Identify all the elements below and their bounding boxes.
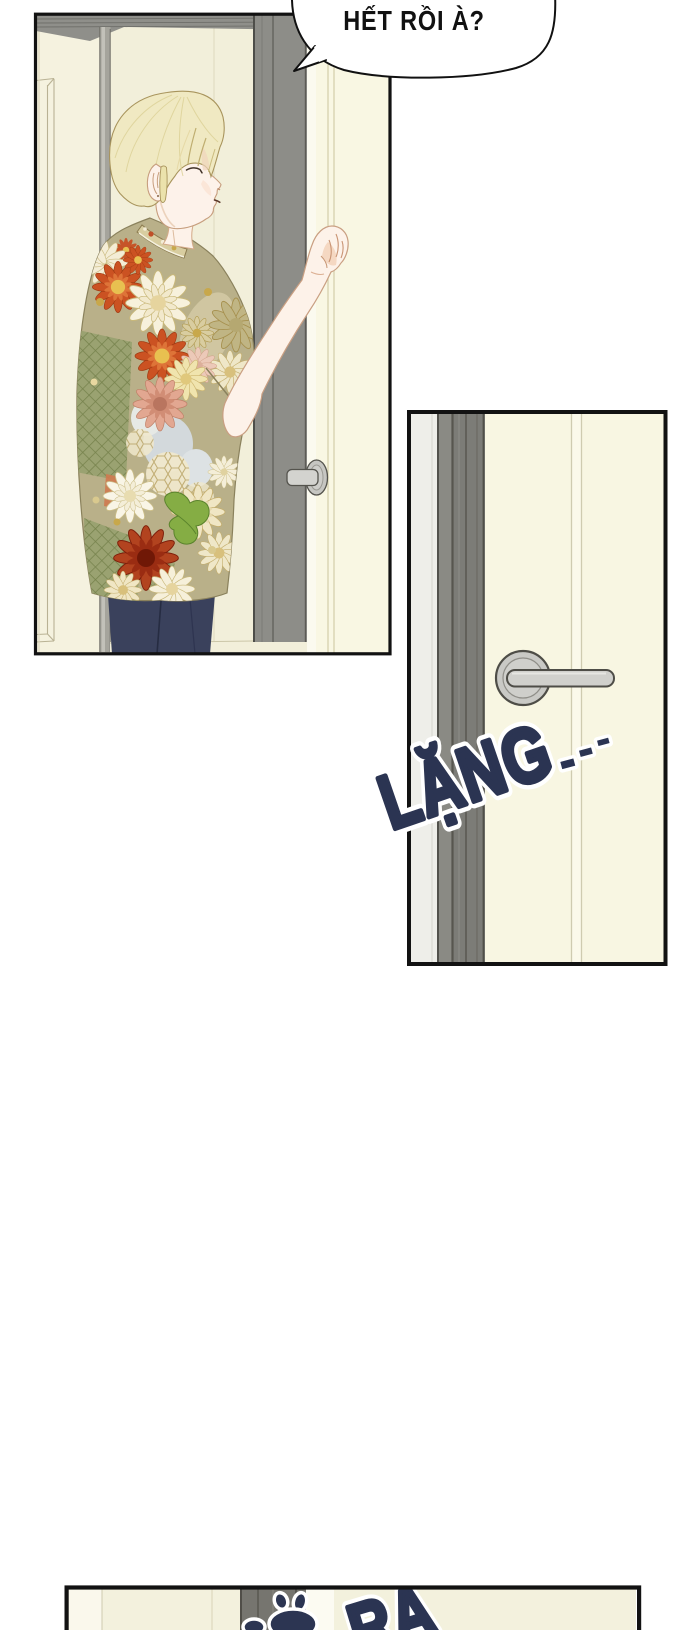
svg-text:RA: RA bbox=[339, 1568, 445, 1630]
svg-text:HẾT RỒI À?: HẾT RỒI À? bbox=[343, 4, 485, 36]
